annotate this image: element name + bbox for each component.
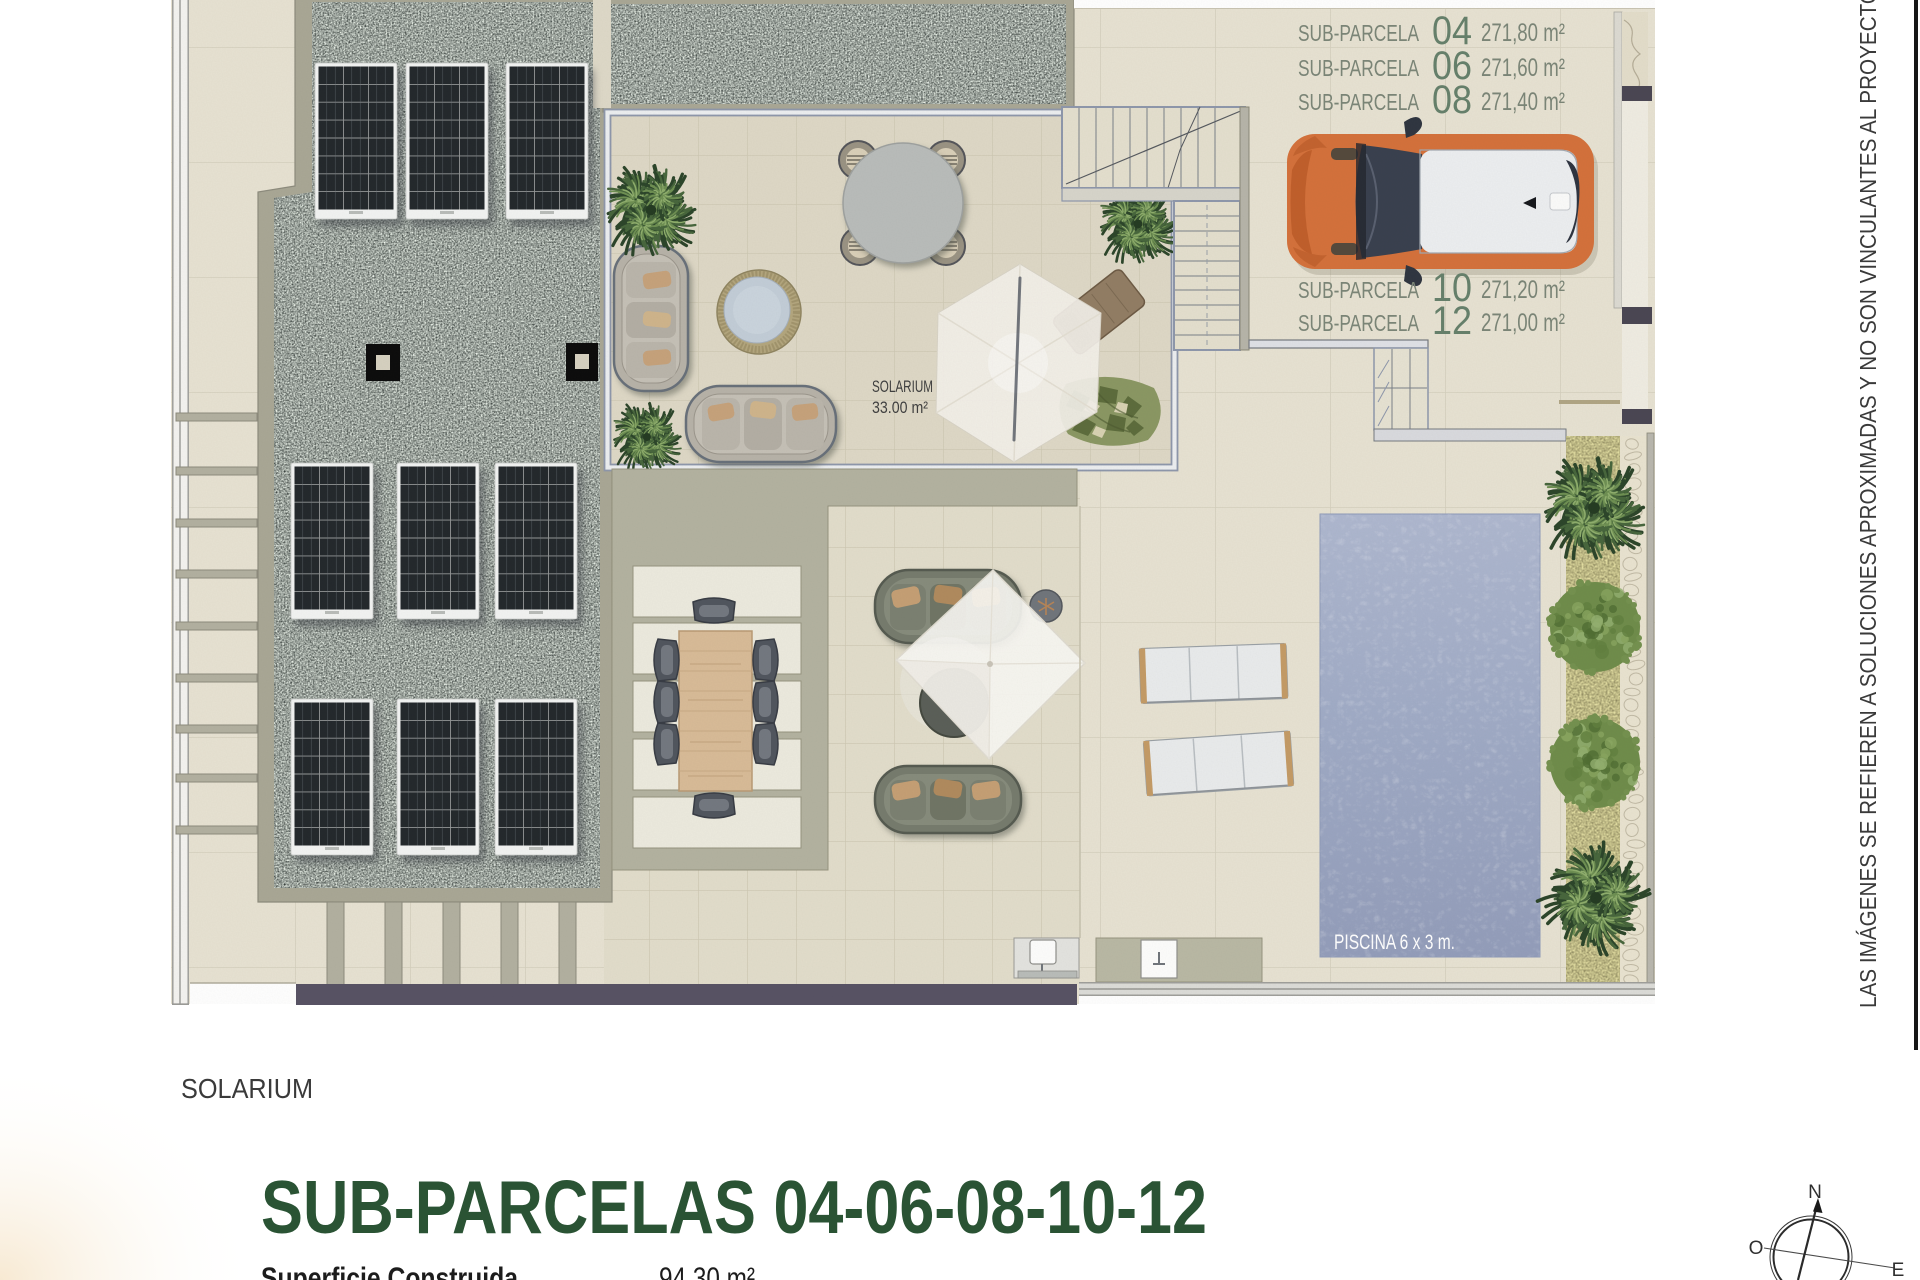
svg-text:LAS IMÁGENES SE REFIEREN A SOL: LAS IMÁGENES SE REFIEREN A SOLUCIONES AP… <box>1855 0 1881 1008</box>
svg-text:N: N <box>1808 1182 1822 1203</box>
svg-text:Superficie Construida: Superficie Construida <box>261 1262 518 1280</box>
svg-text:E: E <box>1892 1260 1905 1280</box>
svg-text:SUB-PARCELAS 04-06-08-10-12: SUB-PARCELAS 04-06-08-10-12 <box>261 1165 1207 1249</box>
svg-text:SOLARIUM: SOLARIUM <box>181 1073 313 1104</box>
svg-text:94,30 m²: 94,30 m² <box>659 1262 755 1280</box>
svg-text:O: O <box>1749 1238 1764 1259</box>
